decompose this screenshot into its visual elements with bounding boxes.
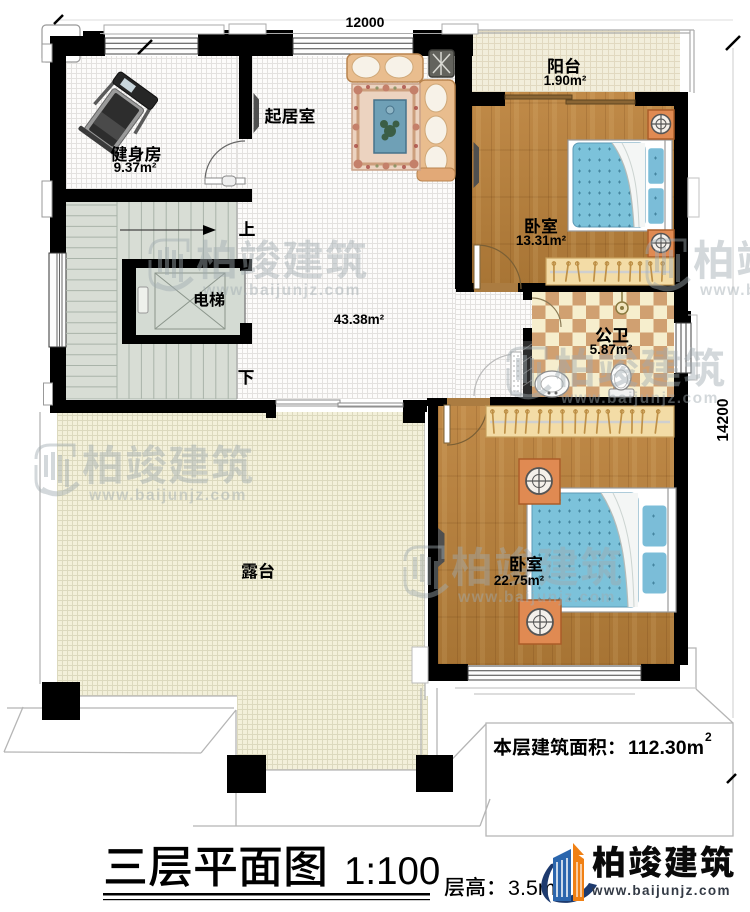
svg-text:1.90m²: 1.90m² <box>544 73 587 88</box>
svg-text:14200: 14200 <box>715 398 732 441</box>
svg-text:22.75m²: 22.75m² <box>494 573 545 588</box>
svg-text:www.baijunjz.com: www.baijunjz.com <box>591 883 731 898</box>
svg-text:2: 2 <box>705 730 712 744</box>
svg-text:3.5m: 3.5m <box>508 876 556 900</box>
svg-text:5.87m²: 5.87m² <box>590 342 633 357</box>
svg-text:9.37m²: 9.37m² <box>114 160 157 175</box>
svg-text:112.30m: 112.30m <box>628 737 704 759</box>
svg-text:12000: 12000 <box>346 14 385 30</box>
svg-text:43.38m²: 43.38m² <box>334 312 385 327</box>
svg-text:13.31m²: 13.31m² <box>516 233 567 248</box>
svg-text:1:100: 1:100 <box>344 850 440 893</box>
